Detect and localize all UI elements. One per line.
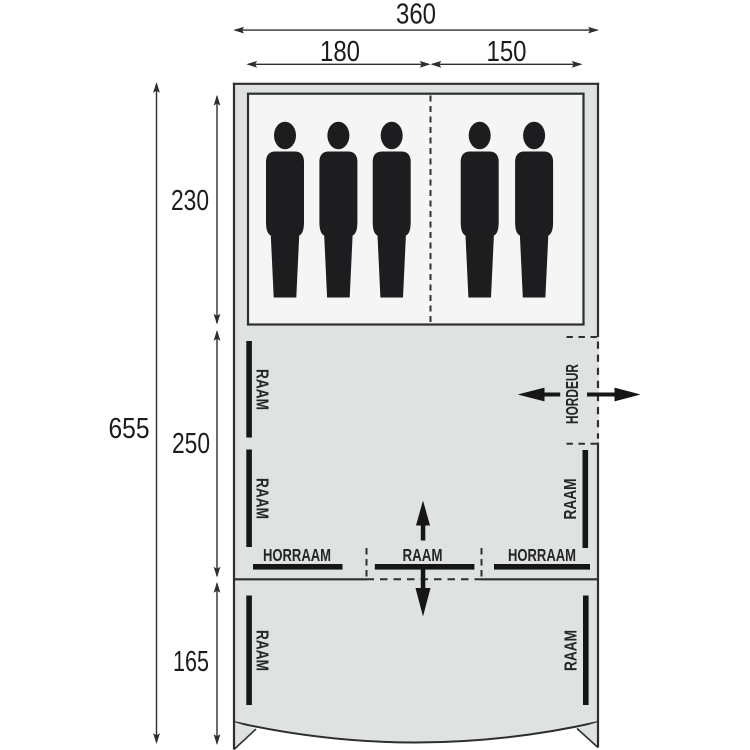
svg-text:655: 655 — [109, 413, 150, 445]
svg-text:RAAM: RAAM — [560, 479, 580, 520]
svg-text:360: 360 — [396, 0, 436, 31]
svg-text:150: 150 — [487, 36, 527, 68]
svg-text:RAAM: RAAM — [253, 630, 273, 671]
svg-text:RAAM: RAAM — [253, 478, 273, 519]
svg-text:230: 230 — [171, 185, 209, 217]
svg-text:HORDEUR: HORDEUR — [562, 364, 582, 424]
svg-text:HORRAAM: HORRAAM — [263, 545, 331, 565]
svg-text:RAAM: RAAM — [403, 545, 443, 565]
svg-text:RAAM: RAAM — [253, 369, 273, 410]
svg-text:250: 250 — [172, 428, 210, 460]
svg-text:165: 165 — [173, 646, 209, 678]
svg-text:180: 180 — [320, 36, 360, 68]
svg-text:HORRAAM: HORRAAM — [508, 545, 576, 565]
svg-text:RAAM: RAAM — [561, 630, 581, 671]
